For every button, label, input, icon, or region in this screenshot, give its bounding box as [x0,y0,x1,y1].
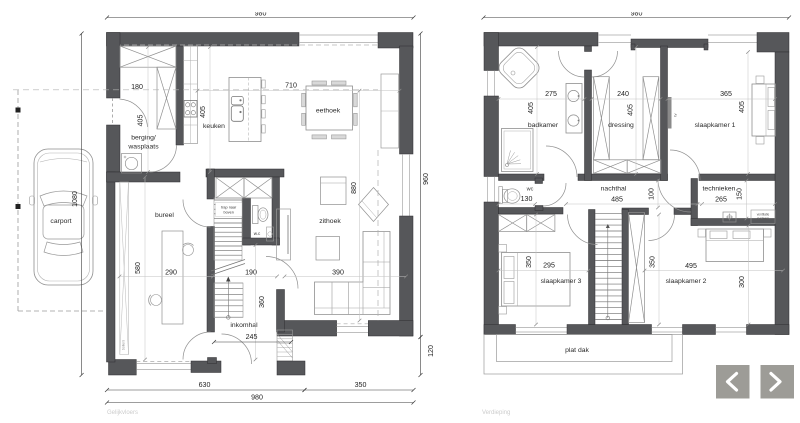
svg-text:badkamer: badkamer [528,122,559,129]
svg-text:245: 245 [246,333,258,341]
svg-text:880: 880 [350,182,358,194]
svg-text:275: 275 [545,90,557,98]
svg-text:inkomhal: inkomhal [230,322,258,329]
svg-text:bureel: bureel [155,212,174,219]
svg-text:wasplaats: wasplaats [127,144,159,151]
svg-text:350: 350 [355,381,367,389]
svg-text:boven: boven [224,211,234,215]
svg-text:405: 405 [738,101,746,113]
svg-text:300: 300 [738,276,746,288]
svg-text:580: 580 [134,262,142,274]
svg-text:710: 710 [285,82,297,90]
svg-text:190: 190 [245,269,257,277]
svg-text:tv: tv [673,113,678,116]
svg-text:290: 290 [165,269,177,277]
svg-text:plat dak: plat dak [565,347,589,354]
svg-text:technieken: technieken [703,186,736,193]
svg-text:360: 360 [258,296,266,308]
svg-text:keuken: keuken [203,123,225,130]
svg-text:295: 295 [543,262,555,270]
svg-text:trap naar: trap naar [221,206,237,210]
svg-text:slaapkamer 2: slaapkamer 2 [666,278,707,285]
svg-text:w.c: w.c [254,231,261,236]
svg-text:Gelijkvloers: Gelijkvloers [107,410,138,416]
svg-text:980: 980 [251,394,263,402]
svg-text:boilers: boilers [122,340,126,351]
svg-text:eethoek: eethoek [316,108,341,115]
svg-text:960: 960 [422,173,430,185]
svg-text:nachthal: nachthal [601,186,627,193]
svg-text:100: 100 [648,188,656,200]
svg-text:365: 365 [720,90,732,98]
svg-text:495: 495 [685,262,697,270]
svg-text:slaapkamer 3: slaapkamer 3 [541,278,582,285]
svg-text:1080: 1080 [71,191,79,207]
svg-text:350: 350 [649,256,657,268]
svg-text:405: 405 [199,106,207,118]
svg-text:265: 265 [715,196,727,204]
svg-text:130: 130 [521,195,533,203]
svg-text:dressing: dressing [608,122,634,129]
svg-text:berging/: berging/ [131,135,156,142]
svg-text:630: 630 [199,381,211,389]
svg-text:485: 485 [611,196,623,204]
svg-text:120: 120 [427,345,435,357]
svg-text:350: 350 [525,256,533,268]
svg-text:405: 405 [137,115,145,127]
svg-text:Verdieping: Verdieping [482,410,510,416]
svg-text:zithoek: zithoek [319,218,341,225]
svg-text:405: 405 [627,104,635,116]
svg-text:240: 240 [617,90,629,98]
svg-text:wc: wc [526,187,534,193]
svg-text:390: 390 [332,269,344,277]
svg-text:carport: carport [50,218,71,225]
svg-text:150: 150 [736,188,744,200]
svg-text:systeem: systeem [757,217,769,221]
svg-text:405: 405 [527,102,535,114]
svg-text:slaapkamer 1: slaapkamer 1 [695,122,736,129]
svg-text:180: 180 [131,83,143,91]
